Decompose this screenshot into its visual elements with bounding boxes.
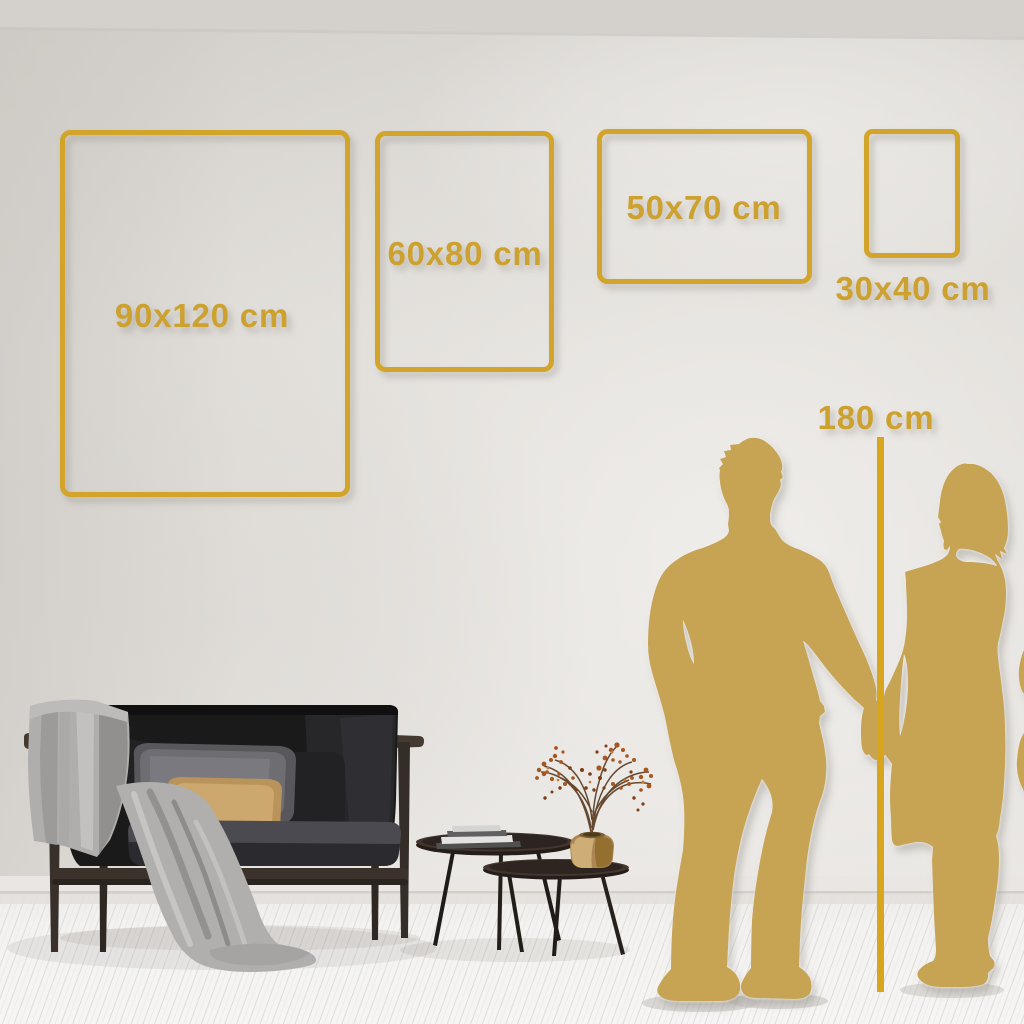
svg-text:90x120 cm: 90x120 cm <box>115 297 289 334</box>
svg-text:50x70 cm: 50x70 cm <box>626 189 781 226</box>
svg-text:30x40 cm: 30x40 cm <box>835 270 990 307</box>
svg-text:60x80 cm: 60x80 cm <box>387 235 542 272</box>
svg-text:180 cm: 180 cm <box>818 399 935 436</box>
